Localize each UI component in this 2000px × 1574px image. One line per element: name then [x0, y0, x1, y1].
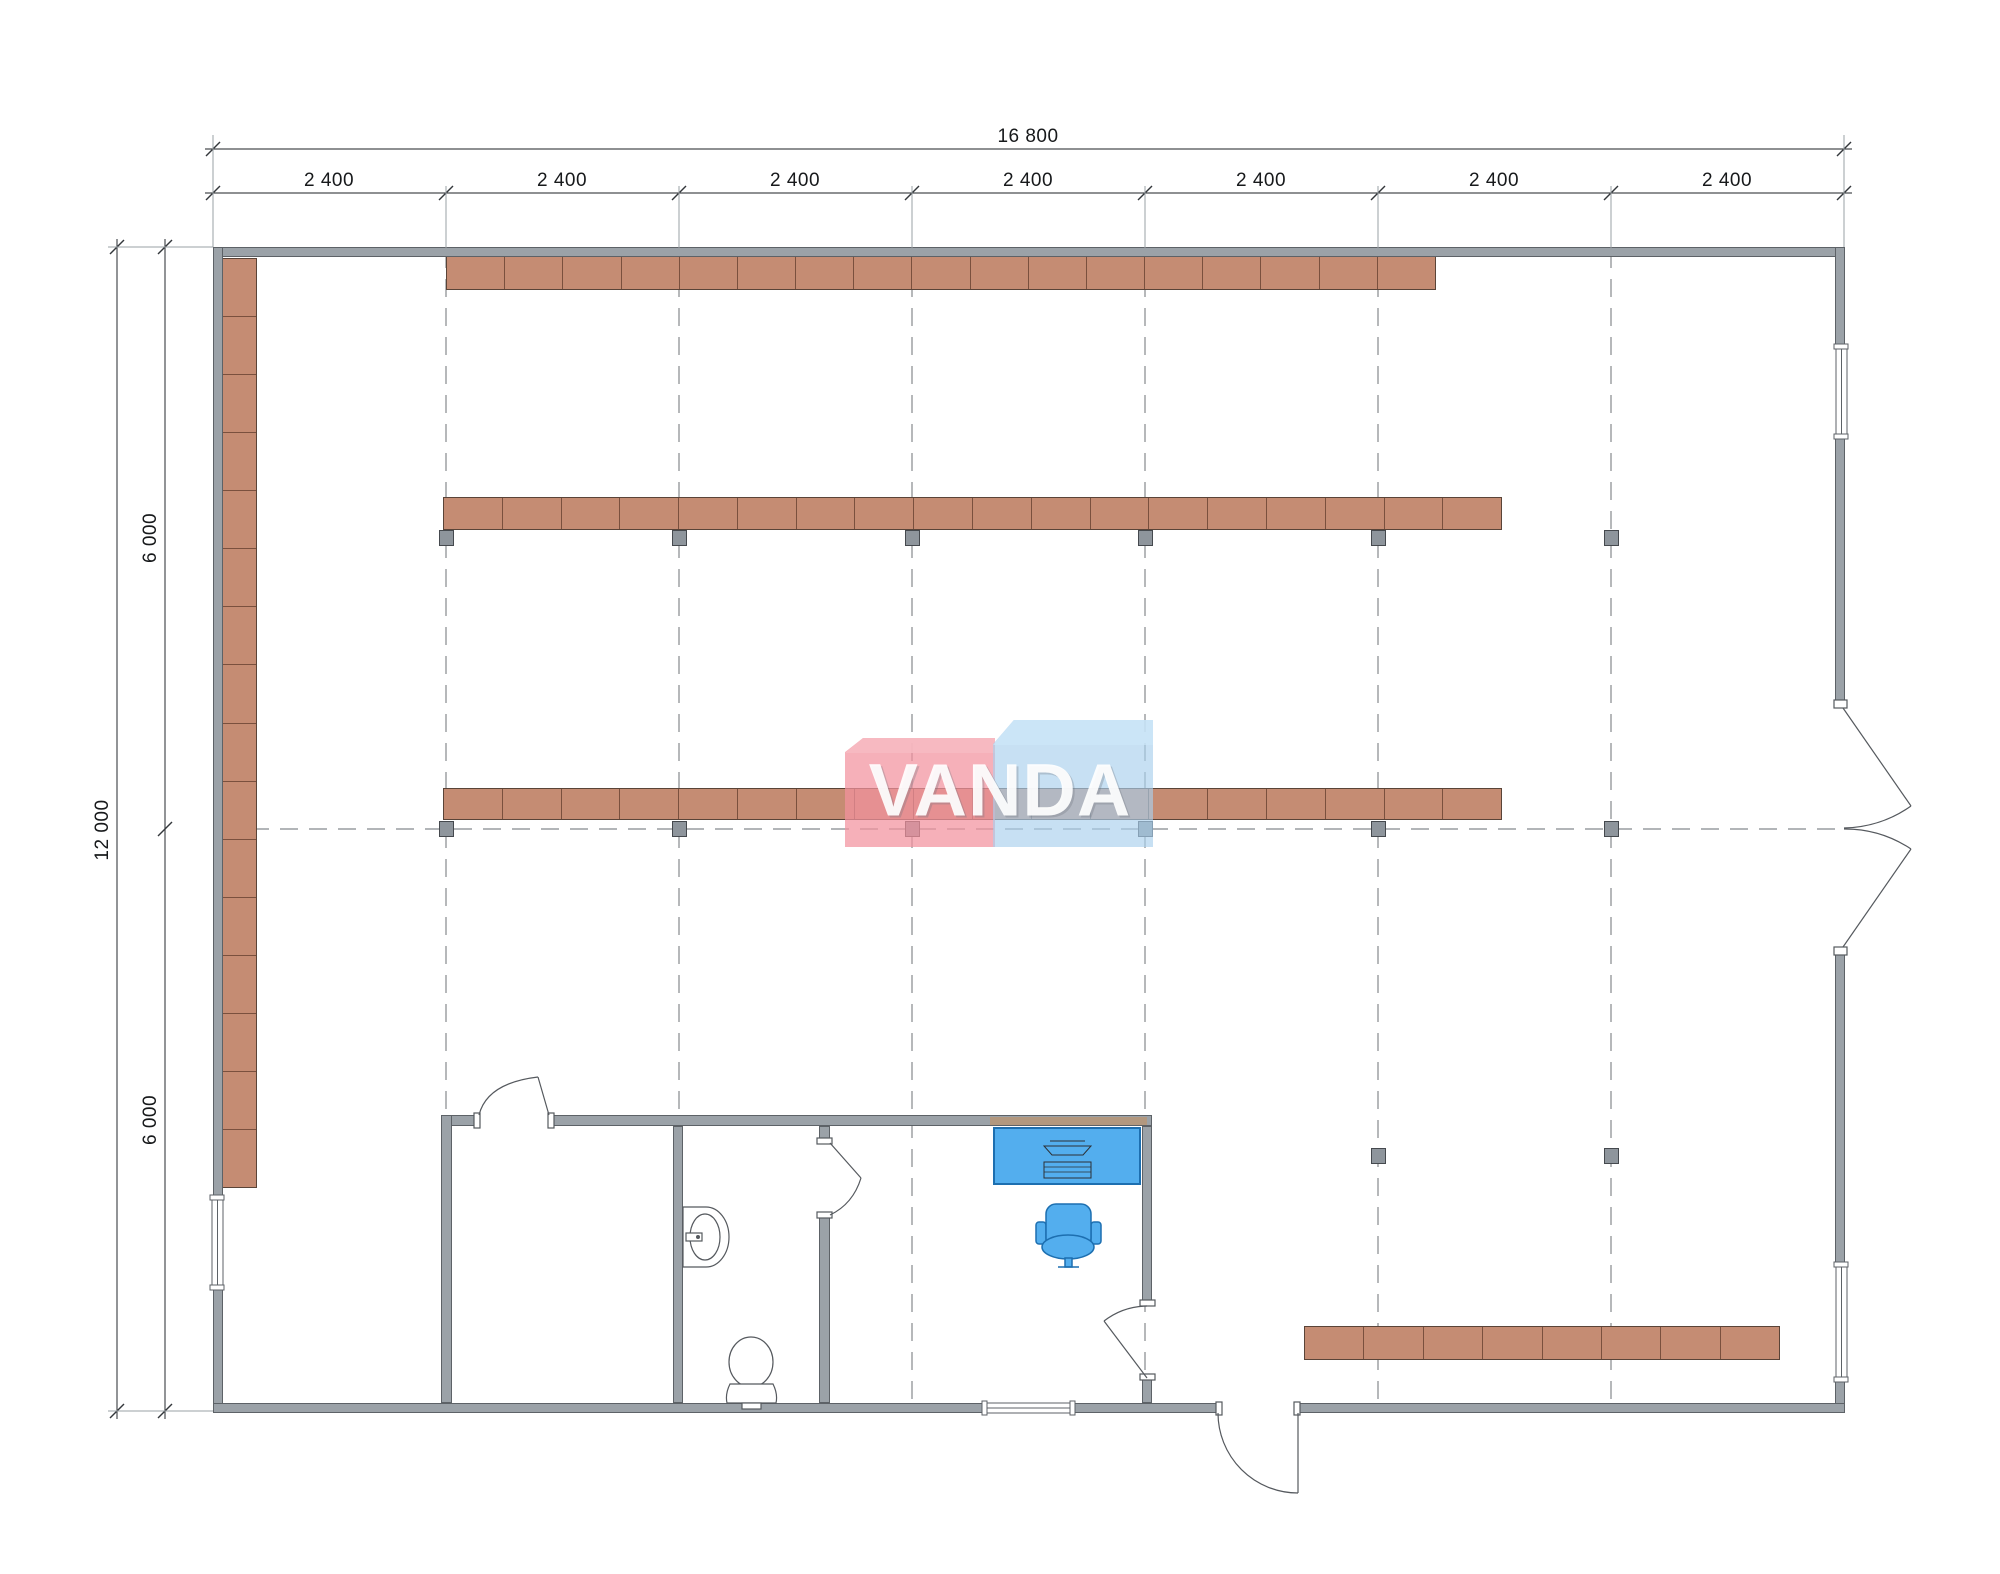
shelf-tile — [223, 259, 256, 316]
shelf-tile — [502, 498, 561, 529]
shelf-tile — [1148, 498, 1207, 529]
shelf-tile — [223, 1013, 256, 1071]
shelf-tile — [1202, 257, 1260, 289]
dim-half-height-label-1: 6 000 — [140, 513, 162, 563]
shelf-tile — [561, 498, 620, 529]
window-bottom-wall — [982, 1401, 1075, 1415]
shelf-tile — [223, 606, 256, 664]
shelf-tile — [737, 498, 796, 529]
window-left-wall — [210, 1195, 224, 1290]
shelf-tile — [504, 257, 562, 289]
shelf-tile — [223, 432, 256, 490]
wall-segment — [441, 1115, 452, 1403]
shelf-tile — [619, 498, 678, 529]
structural-column — [1604, 821, 1619, 837]
dim-bay-label-7: 2 400 — [1702, 170, 1752, 192]
logo-text: VANDA — [869, 748, 1132, 833]
dim-bay-label-1: 2 400 — [304, 170, 354, 192]
shelf-tile — [562, 257, 620, 289]
toilet-fixture — [726, 1337, 776, 1409]
window-right-wall-top — [1834, 344, 1848, 439]
desk-back-panel — [990, 1117, 1147, 1125]
shelf-tile — [1363, 1327, 1422, 1359]
dim-bay-label-5: 2 400 — [1236, 170, 1286, 192]
shelf-tile — [1031, 498, 1090, 529]
shelf-tile — [223, 316, 256, 374]
office-door — [1104, 1300, 1155, 1380]
bottom-right-shelf-row — [1304, 1326, 1780, 1360]
shelf-tile — [970, 257, 1028, 289]
exterior-door-bottom — [1216, 1402, 1300, 1493]
dim-bay-label-3: 2 400 — [770, 170, 820, 192]
dimension-tick — [1837, 186, 1851, 200]
dim-total-width-label: 16 800 — [997, 126, 1058, 148]
shelf-tile — [223, 548, 256, 606]
structural-column — [1604, 1148, 1619, 1164]
shelf-tile — [1377, 257, 1435, 289]
shelf-tile — [223, 664, 256, 722]
wall-segment — [213, 1288, 223, 1413]
wall-segment — [1142, 1378, 1152, 1403]
dim-bay-label-4: 2 400 — [1003, 170, 1053, 192]
dim-bay-label-6: 2 400 — [1469, 170, 1519, 192]
dimension-tick — [206, 142, 220, 156]
shelf-tile — [1266, 498, 1325, 529]
wall-segment — [819, 1215, 830, 1403]
wall-segment — [1835, 247, 1845, 346]
shelf-tile — [1148, 789, 1207, 819]
shelf-tile — [795, 257, 853, 289]
shelf-tile — [1442, 498, 1501, 529]
logo-blue-lid — [993, 720, 1153, 745]
upper-middle-shelf-row — [443, 497, 1502, 530]
shelf-tile — [796, 498, 855, 529]
dimension-tick — [1138, 186, 1152, 200]
shelf-tile — [1207, 498, 1266, 529]
dim-total-height-label: 12 000 — [92, 799, 114, 860]
dim-bay-label-2: 2 400 — [537, 170, 587, 192]
shelf-tile — [223, 374, 256, 432]
structural-column — [1604, 530, 1619, 546]
structural-column — [672, 530, 687, 546]
shelf-tile — [444, 789, 502, 819]
shelf-tile — [223, 1129, 256, 1187]
dimension-tick — [158, 1404, 172, 1418]
shelf-tile — [1266, 789, 1325, 819]
shelf-tile — [1207, 789, 1266, 819]
double-door-right — [1834, 700, 1911, 955]
dimension-tick — [158, 240, 172, 254]
shelf-tile — [913, 498, 972, 529]
shelf-tile — [1319, 257, 1377, 289]
dimension-tick — [1371, 186, 1385, 200]
dimension-tick — [905, 186, 919, 200]
window-right-wall-bottom — [1834, 1262, 1848, 1382]
shelf-tile — [561, 789, 620, 819]
structural-column — [672, 821, 687, 837]
wall-segment — [213, 1403, 984, 1413]
shelf-tile — [737, 257, 795, 289]
structural-column — [905, 530, 920, 546]
shelf-tile — [1542, 1327, 1601, 1359]
dimension-tick — [110, 1404, 124, 1418]
wall-segment — [673, 1126, 683, 1403]
structural-column — [1371, 530, 1386, 546]
shelf-tile — [619, 789, 678, 819]
shelf-tile — [223, 1071, 256, 1129]
shelf-tile — [1423, 1327, 1482, 1359]
shelf-tile — [1028, 257, 1086, 289]
shelf-tile — [223, 723, 256, 781]
shelf-tile — [854, 498, 913, 529]
shelf-tile — [1305, 1327, 1363, 1359]
wall-segment — [1298, 1403, 1845, 1413]
wall-segment — [213, 247, 223, 1197]
shelf-tile — [972, 498, 1031, 529]
structural-column — [439, 821, 454, 837]
left-wall-shelf — [222, 258, 257, 1188]
structural-column — [1371, 821, 1386, 837]
shelf-tile — [1384, 789, 1443, 819]
wall-segment — [819, 1126, 830, 1143]
shelf-tile — [1325, 498, 1384, 529]
wall-segment — [1142, 1126, 1152, 1305]
dimension-tick — [110, 240, 124, 254]
shelf-tile — [223, 955, 256, 1013]
structural-column — [439, 530, 454, 546]
shelf-tile — [1442, 789, 1501, 819]
wall-segment — [1835, 947, 1845, 1264]
shelf-tile — [1325, 789, 1384, 819]
wall-segment — [1835, 437, 1845, 708]
shelf-tile — [1144, 257, 1202, 289]
office-desk — [993, 1127, 1141, 1185]
dim-half-height-label-2: 6 000 — [140, 1095, 162, 1145]
shelf-tile — [678, 498, 737, 529]
floor-plan-canvas: VANDA 16 800 2 400 2 400 2 400 2 400 2 4… — [0, 0, 2000, 1574]
shelf-tile — [447, 257, 504, 289]
shelf-tile — [223, 781, 256, 839]
dimension-tick — [1604, 186, 1618, 200]
storage-room-door — [474, 1077, 554, 1128]
shelf-tile — [1601, 1327, 1660, 1359]
structural-column — [1138, 530, 1153, 546]
top-shelf-row — [446, 256, 1436, 290]
shelf-tile — [678, 789, 737, 819]
structural-column — [1371, 1148, 1386, 1164]
shelf-tile — [1384, 498, 1443, 529]
shelf-tile — [853, 257, 911, 289]
dimension-tick — [206, 186, 220, 200]
shelf-tile — [223, 839, 256, 897]
sink-fixture — [683, 1207, 729, 1267]
dimension-tick — [1837, 142, 1851, 156]
shelf-tile — [1086, 257, 1144, 289]
shelf-tile — [1720, 1327, 1779, 1359]
shelf-tile — [444, 498, 502, 529]
bathroom-door — [817, 1138, 861, 1218]
shelf-tile — [223, 897, 256, 955]
shelf-tile — [1482, 1327, 1541, 1359]
wall-segment — [213, 247, 1845, 257]
shelf-tile — [621, 257, 679, 289]
wall-segment — [1073, 1403, 1218, 1413]
shelf-tile — [737, 789, 796, 819]
shelf-tile — [911, 257, 969, 289]
office-chair — [1036, 1204, 1101, 1267]
dimension-tick — [158, 822, 172, 836]
dimension-tick — [672, 186, 686, 200]
shelf-tile — [1660, 1327, 1719, 1359]
shelf-tile — [1090, 498, 1149, 529]
shelf-tile — [502, 789, 561, 819]
shelf-tile — [223, 490, 256, 548]
dimension-tick — [439, 186, 453, 200]
shelf-tile — [1260, 257, 1318, 289]
shelf-tile — [679, 257, 737, 289]
